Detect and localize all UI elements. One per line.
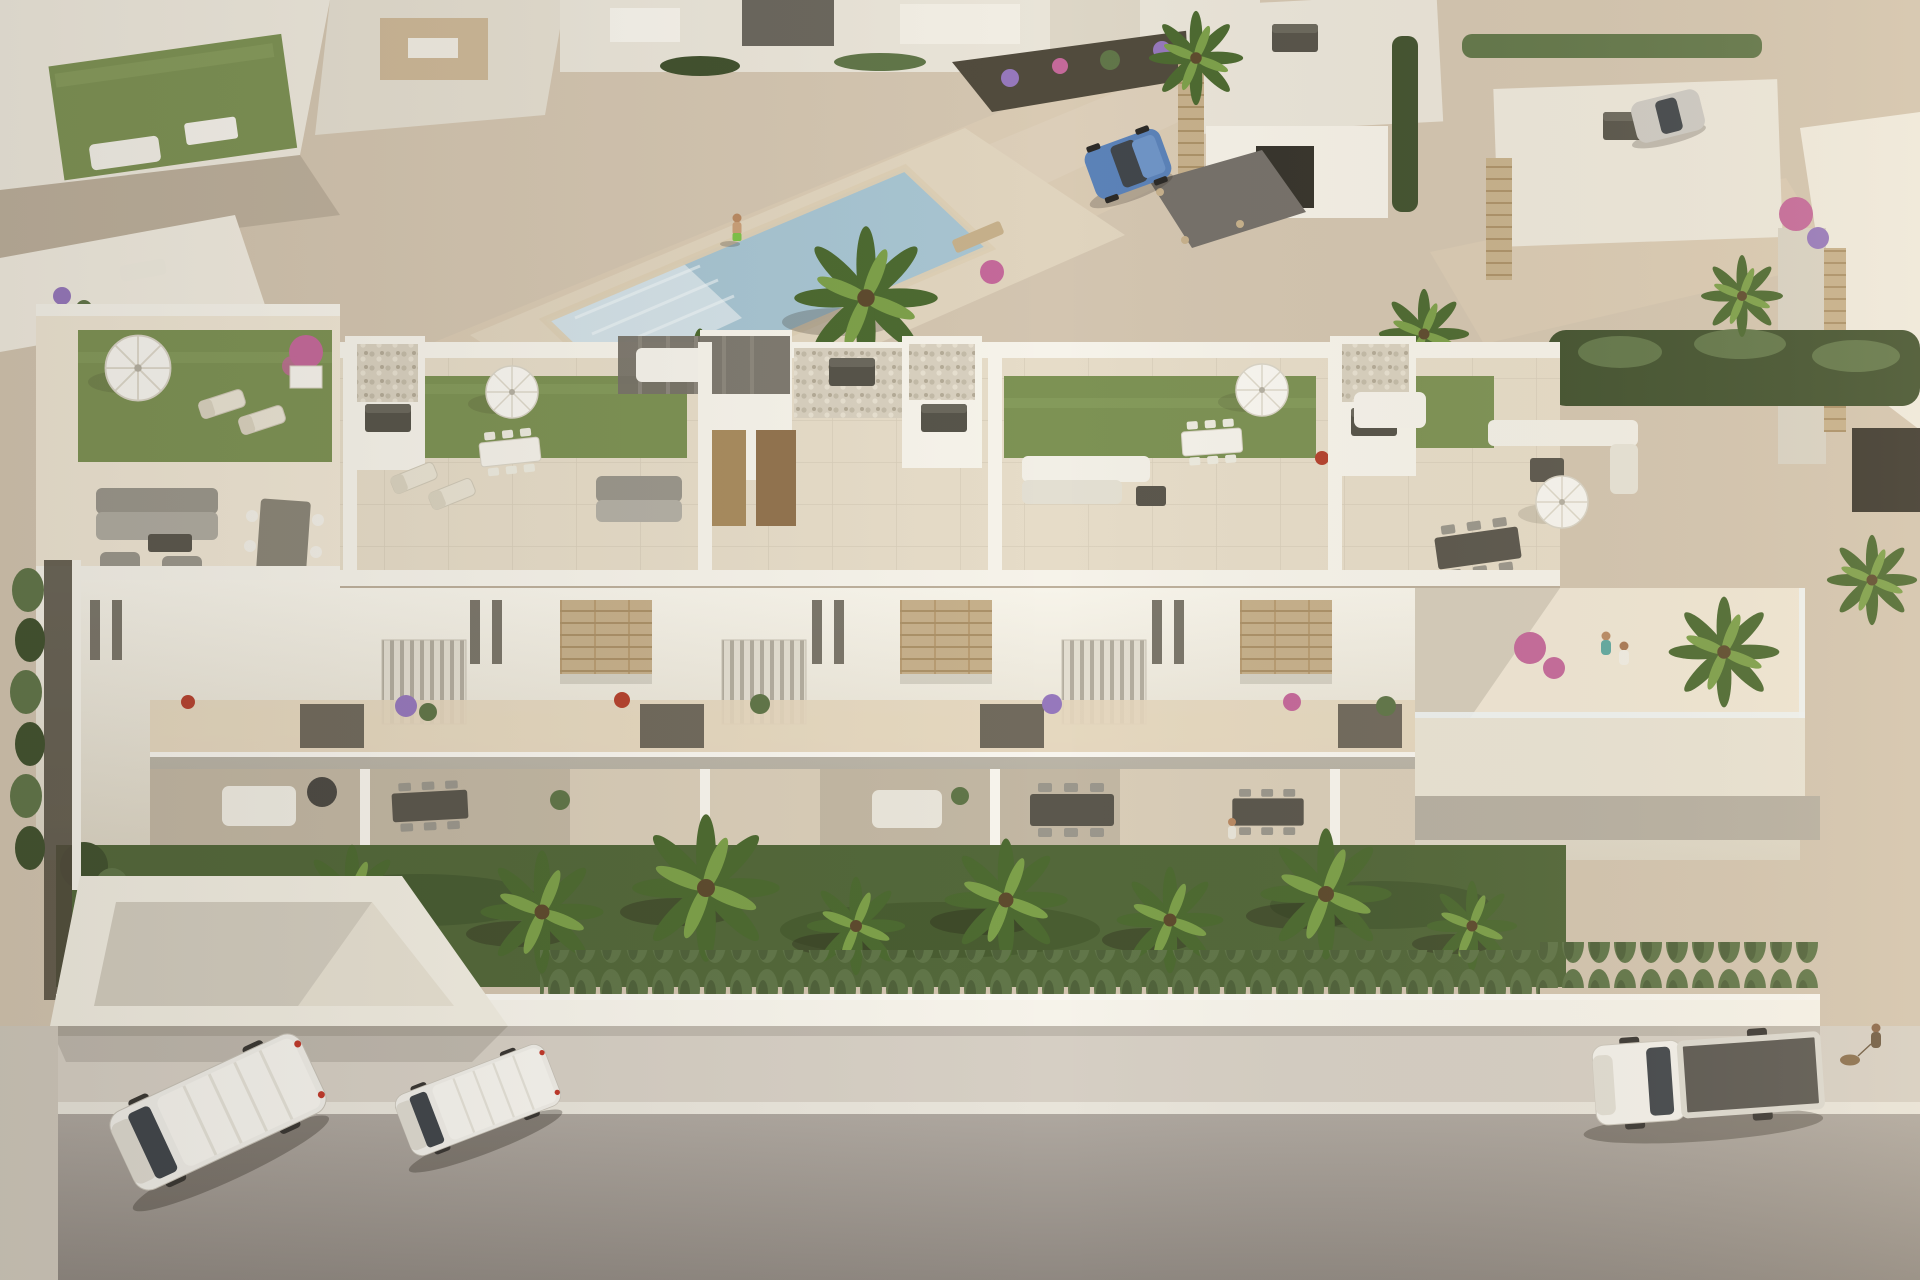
sunlight-overlay [0,0,1920,1280]
aerial-render [0,0,1920,1280]
